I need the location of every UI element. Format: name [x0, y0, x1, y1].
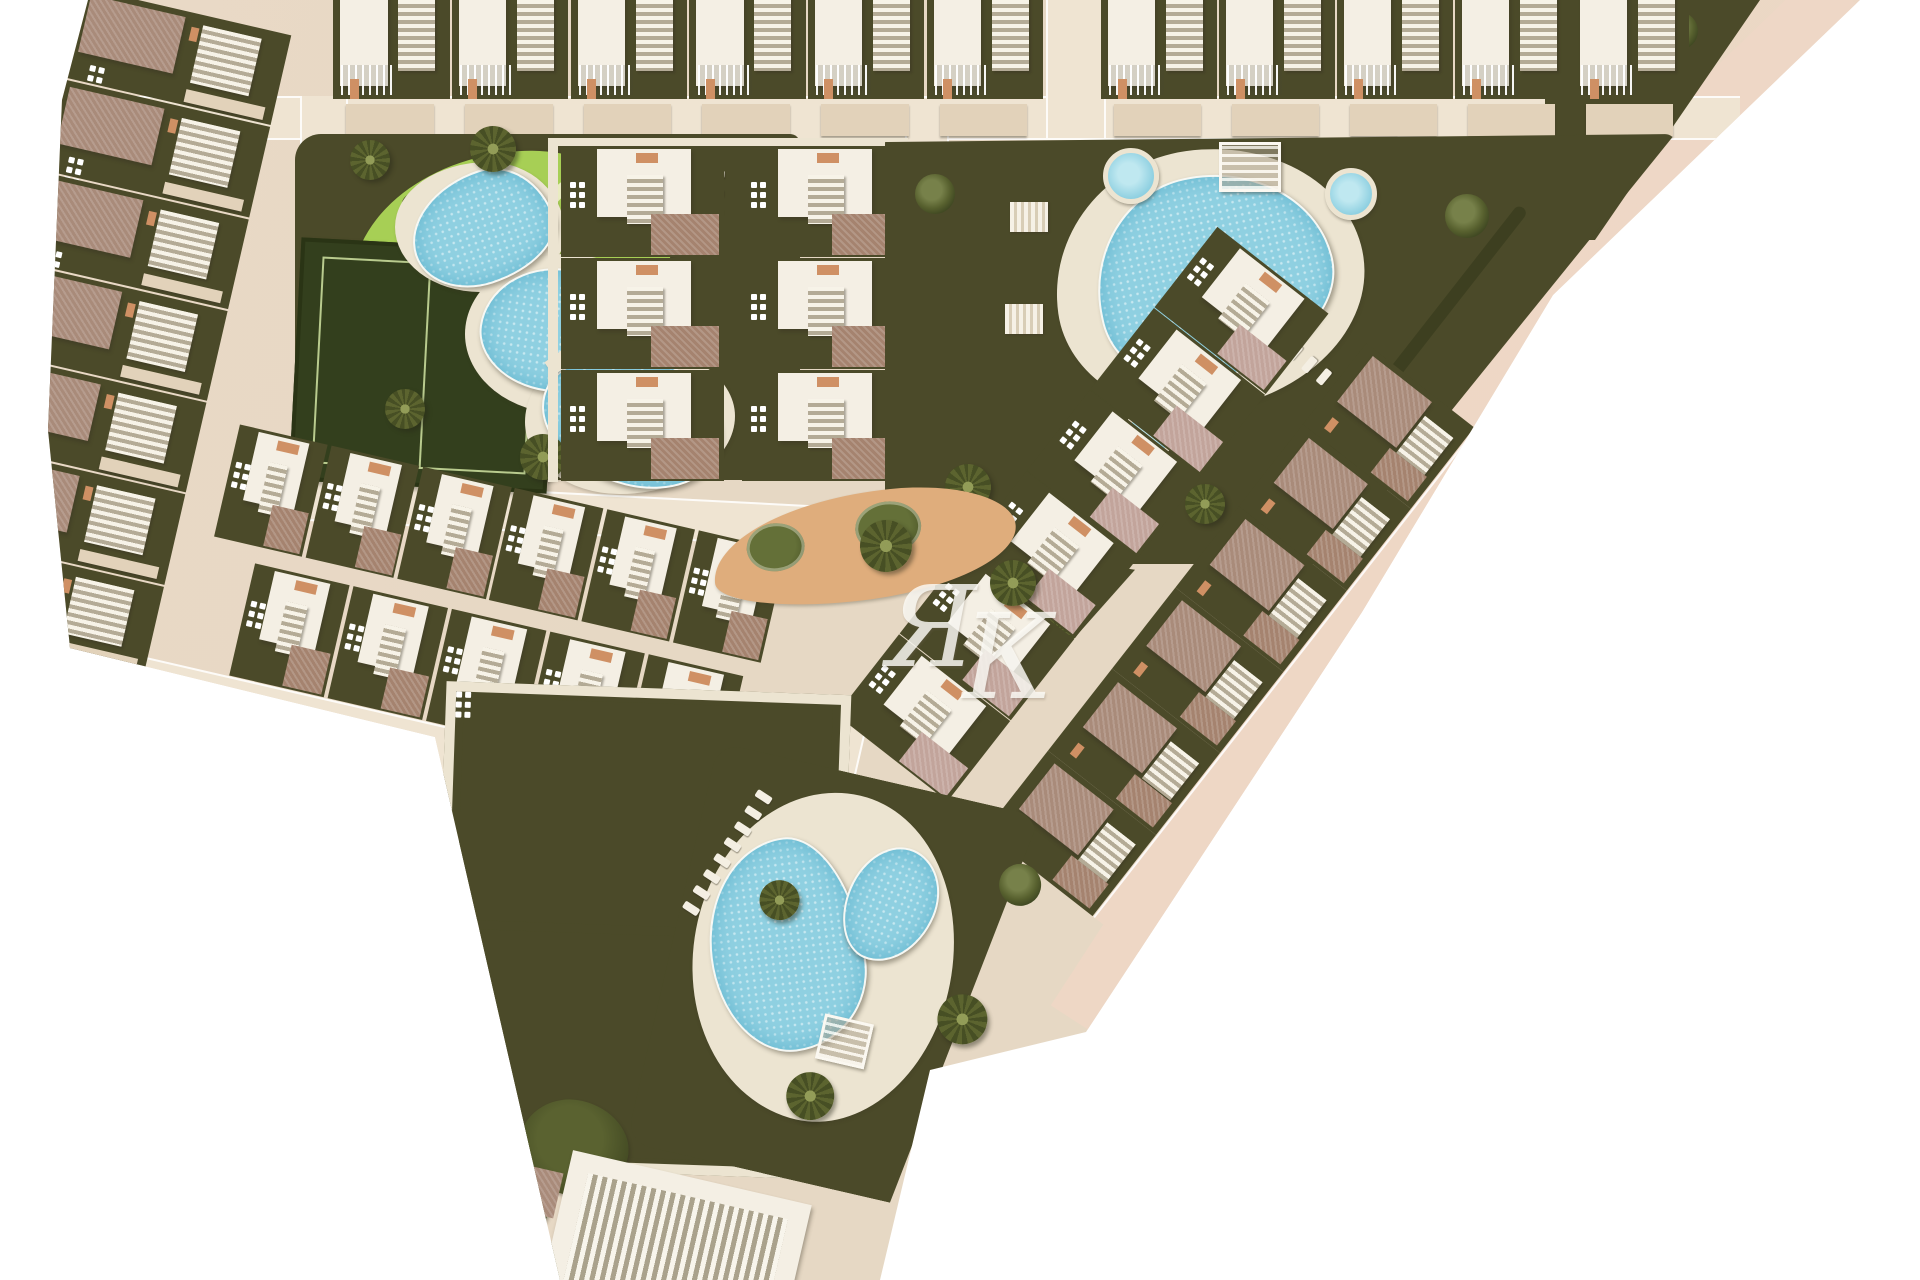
unit-awning	[350, 79, 359, 99]
unit-awning	[817, 153, 839, 163]
unit-stairs	[1638, 0, 1675, 71]
unit-terrace	[1468, 104, 1555, 136]
unit-stairs	[1166, 0, 1203, 71]
unit-patio	[651, 326, 719, 366]
townhouse-unit	[558, 370, 727, 482]
unit-terrace	[346, 104, 434, 136]
unit-awning	[1118, 79, 1127, 99]
unit-awning	[1354, 79, 1363, 99]
unit-terrace	[1114, 104, 1201, 136]
townhouse-row	[332, 0, 1044, 136]
unit-outdoor-furniture	[4, 432, 11, 439]
unit-awning	[943, 79, 952, 99]
sun-lounger	[713, 853, 732, 869]
tip-outbuilding	[485, 1209, 518, 1250]
unit-awning	[1590, 79, 1599, 99]
unit-terrace	[940, 104, 1028, 136]
unit-stairs	[873, 0, 910, 71]
townhouse-unit	[688, 0, 807, 136]
unit-terrace	[1232, 104, 1319, 136]
unit-outdoor-furniture	[570, 294, 576, 300]
unit-stairs	[754, 0, 791, 71]
townhouse-unit	[1218, 0, 1336, 136]
townhouse-unit	[569, 0, 688, 136]
unit-stairs	[1284, 0, 1321, 71]
townhouse-unit	[332, 0, 451, 136]
unit-awning	[706, 79, 715, 99]
townhouse-unit	[1454, 0, 1572, 136]
development-site	[0, 0, 1920, 1280]
townhouse-unit	[558, 258, 727, 370]
townhouse-unit	[451, 0, 570, 136]
unit-roof	[0, 546, 58, 625]
unit-stairs	[636, 0, 673, 71]
unit-roof	[0, 454, 79, 533]
unit-awning	[468, 79, 477, 99]
unit-awning	[1472, 79, 1481, 99]
unit-awning	[636, 265, 658, 275]
unit-awning	[817, 265, 839, 275]
townhouse-unit	[807, 0, 926, 136]
unit-terrace	[1586, 104, 1673, 136]
unit-terrace	[584, 104, 672, 136]
palm-tree	[385, 389, 425, 429]
unit-outdoor-furniture	[448, 924, 454, 930]
unit-awning	[636, 377, 658, 387]
sunbathing-pad	[1010, 202, 1048, 232]
unit-outdoor-furniture	[751, 294, 757, 300]
tip-building-roof-stripes	[561, 1173, 788, 1280]
unit-awning	[587, 79, 596, 99]
tip-outbuilding	[518, 1165, 563, 1218]
townhouse-unit	[1100, 0, 1218, 136]
garden-bush-cluster	[440, 1112, 522, 1186]
unit-outdoor-furniture	[46, 249, 53, 256]
townhouse-column	[558, 146, 727, 482]
townhouse-unit	[739, 370, 908, 482]
palm-tree	[860, 520, 912, 572]
tree	[1445, 194, 1489, 238]
unit-outdoor-furniture	[751, 182, 757, 188]
unit-patio	[651, 438, 719, 478]
tree	[915, 174, 955, 214]
unit-patio	[651, 214, 719, 254]
unit-outdoor-furniture	[570, 406, 576, 412]
unit-outdoor-furniture	[570, 182, 576, 188]
pergola	[1219, 142, 1281, 192]
unit-awning	[1236, 79, 1245, 99]
unit-outdoor-furniture	[456, 691, 462, 697]
north-townhouse-row-west	[332, 0, 1044, 136]
sun-lounger	[703, 869, 722, 885]
palm-tree	[470, 126, 516, 172]
townhouse-column	[739, 146, 908, 482]
palm-tree	[990, 560, 1036, 606]
unit-stairs	[1402, 0, 1439, 71]
road-between-top-clusters	[1046, 0, 1106, 138]
townhouse-unit	[1572, 0, 1690, 136]
unit-stairs	[517, 0, 554, 71]
site-plan-render: Я К	[0, 0, 1920, 1280]
north-townhouse-row-east	[1100, 0, 1690, 136]
unit-awning	[636, 153, 658, 163]
unit-stairs	[1520, 0, 1557, 71]
splash-pool	[1325, 168, 1377, 220]
unit-awning	[817, 377, 839, 387]
townhouse-row	[1100, 0, 1690, 136]
unit-terrace	[821, 104, 909, 136]
townhouse-unit	[925, 0, 1044, 136]
sun-lounger	[692, 885, 711, 901]
palm-tree	[350, 140, 390, 180]
sunbathing-pad	[1005, 304, 1043, 334]
splash-pool	[1103, 148, 1159, 204]
unit-awning	[824, 79, 833, 99]
townhouse-unit	[558, 146, 727, 258]
sun-lounger	[744, 805, 763, 821]
unit-stairs	[992, 0, 1029, 71]
planted-mound	[744, 520, 807, 574]
unit-stairs	[398, 0, 435, 71]
central-townhouse-blocks	[548, 138, 908, 482]
unit-outdoor-furniture	[25, 341, 32, 348]
unit-terrace	[1350, 104, 1437, 136]
townhouse-unit	[739, 258, 908, 370]
townhouse-unit	[1336, 0, 1454, 136]
unit-terrace	[702, 104, 790, 136]
unit-outdoor-furniture	[751, 406, 757, 412]
townhouse-unit	[739, 146, 908, 258]
